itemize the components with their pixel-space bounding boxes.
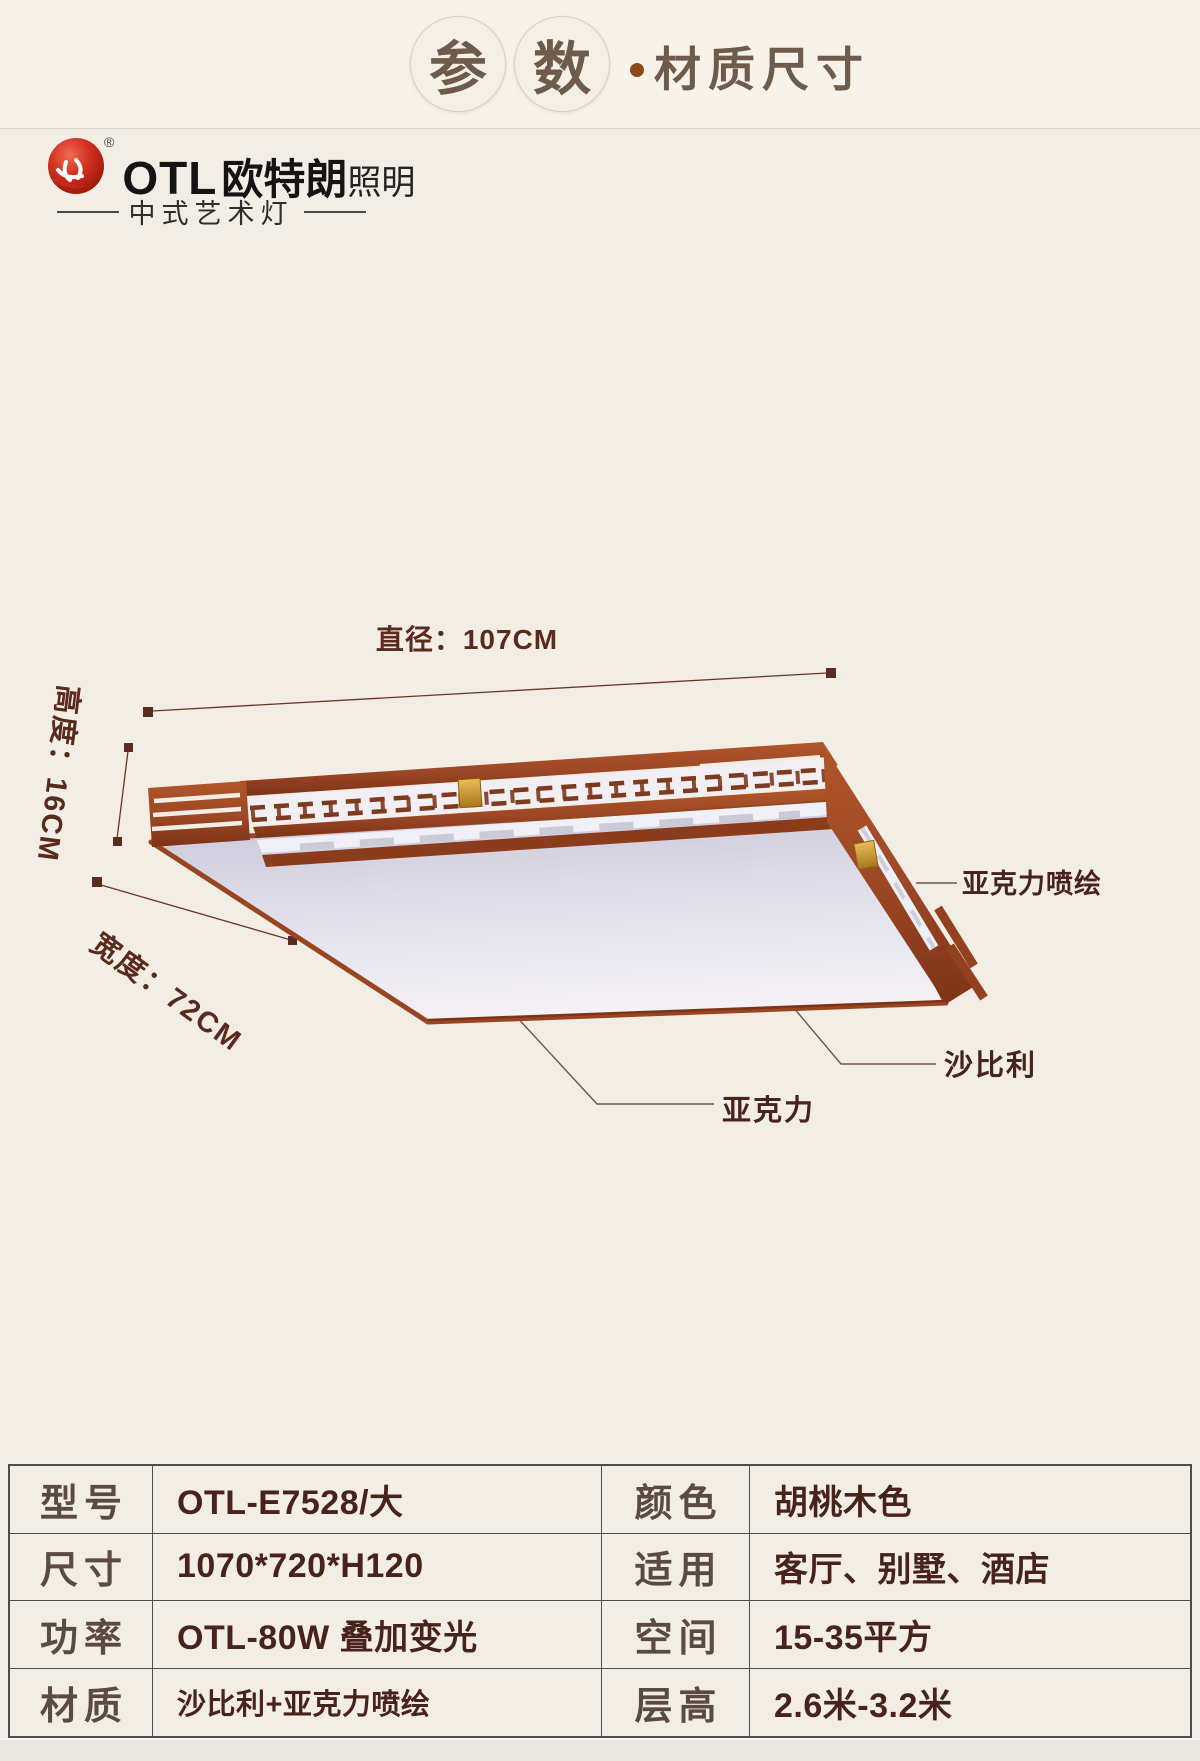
- spec-label-color: 颜色: [602, 1466, 750, 1534]
- callout-sapele: 沙比利: [944, 1042, 1037, 1084]
- spec-label-usage: 适用: [602, 1534, 750, 1602]
- spec-label-power: 功率: [10, 1601, 153, 1669]
- spec-label-model: 型号: [10, 1466, 153, 1534]
- title-char-2: 数: [533, 22, 591, 106]
- tagline-right-line: [304, 211, 366, 213]
- spec-value-space: 15-35平方: [750, 1601, 1190, 1669]
- callout-acrylic: 亚克力: [722, 1087, 815, 1129]
- spec-label-ceiling-height: 层高: [602, 1669, 750, 1737]
- callout-leader-lines: [489, 883, 957, 1104]
- spec-value-model: OTL-E7528/大: [153, 1466, 602, 1534]
- dim-label-diameter: 直径：107CM: [332, 618, 602, 658]
- lamp-image: [148, 742, 984, 1022]
- brand-tagline: 中式艺术灯: [50, 192, 372, 231]
- spec-label-space: 空间: [602, 1601, 750, 1669]
- title-subtitle: 材质尺寸: [654, 31, 870, 100]
- spec-table: 型号 OTL-E7528/大 颜色 胡桃木色 尺寸 1070*720*H120 …: [8, 1464, 1192, 1738]
- title-circle-1: 参: [410, 16, 506, 112]
- spec-value-power: OTL-80W 叠加变光: [153, 1601, 602, 1669]
- lamp-gold-accent-front: [458, 778, 482, 807]
- title-char-1: 参: [429, 22, 487, 106]
- lamp-right-face: [823, 742, 984, 1004]
- spec-value-material: 沙比利+亚克力喷绘: [153, 1669, 602, 1737]
- lamp-gold-accent-side: [854, 840, 878, 869]
- bottom-strip: [0, 1738, 1200, 1761]
- spec-value-color: 胡桃木色: [750, 1466, 1190, 1534]
- spec-value-usage: 客厅、别墅、酒店: [750, 1534, 1190, 1602]
- lamp-top-rail: [240, 742, 829, 796]
- tagline-text: 中式艺术灯: [129, 192, 294, 231]
- spec-label-material: 材质: [10, 1669, 153, 1737]
- title-dot-icon: [630, 63, 644, 77]
- dim-label-height: 高度：16CM: [29, 683, 92, 865]
- page: { "header": { "circle_chars": ["参", "数"]…: [0, 0, 1200, 1759]
- lamp-side-stripe: [257, 801, 845, 853]
- title-circle-2: 数: [514, 16, 610, 112]
- lamp-fret-band: [246, 759, 836, 825]
- dim-label-width: 宽度：72CM: [83, 921, 252, 1060]
- dimension-line-height: [113, 743, 133, 846]
- spec-label-size: 尺寸: [10, 1534, 153, 1602]
- spec-value-size: 1070*720*H120: [153, 1534, 602, 1602]
- dimension-line-diameter: [143, 668, 836, 717]
- lamp-left-louvers: [148, 781, 250, 847]
- header-band: 参 数 材质尺寸: [0, 0, 1200, 129]
- spec-value-ceiling-height: 2.6米-3.2米: [750, 1669, 1190, 1737]
- tagline-left-line: [57, 211, 119, 213]
- page-title: 参 数 材质尺寸: [406, 16, 870, 112]
- callout-acrylic-print: 亚克力喷绘: [962, 862, 1102, 901]
- lamp-acrylic-panel: [151, 800, 946, 1022]
